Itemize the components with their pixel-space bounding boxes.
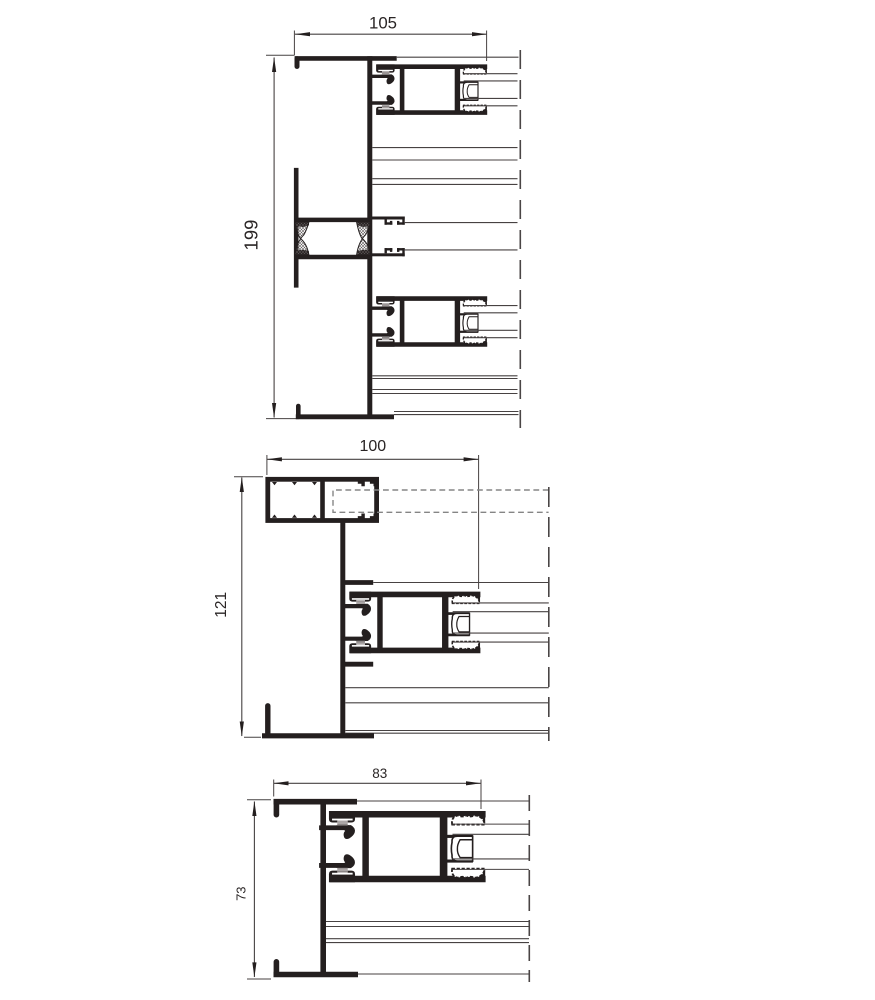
svg-text:73: 73 bbox=[234, 886, 249, 900]
svg-text:199: 199 bbox=[241, 220, 262, 251]
svg-text:83: 83 bbox=[372, 766, 387, 781]
svg-text:105: 105 bbox=[369, 13, 397, 32]
svg-text:121: 121 bbox=[213, 592, 230, 618]
svg-text:100: 100 bbox=[359, 438, 386, 455]
